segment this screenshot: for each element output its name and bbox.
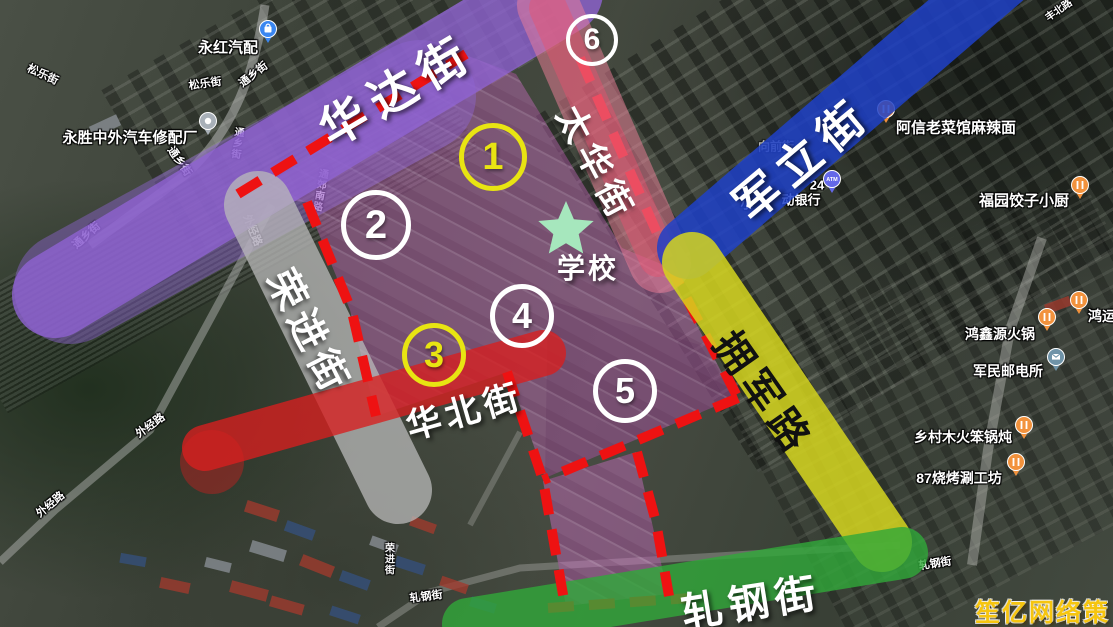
zone-badge-3: 3 <box>402 323 466 387</box>
zone-badge-6: 6 <box>566 14 618 66</box>
zone-number: 6 <box>584 25 601 55</box>
zone-number: 3 <box>424 337 444 373</box>
zone-badge-5: 5 <box>593 359 657 423</box>
zone-badge-1: 1 <box>459 123 527 191</box>
zone-number: 2 <box>365 205 387 245</box>
watermark: 笙亿网络策划 <box>975 593 1113 627</box>
zone-badge-2: 2 <box>341 190 411 260</box>
zone-number: 5 <box>615 373 635 409</box>
zone-number: 1 <box>482 138 503 176</box>
zone-number: 4 <box>512 298 532 334</box>
school-label: 学校 <box>557 247 619 287</box>
annotation-layer <box>0 0 1113 627</box>
map-canvas[interactable]: 松乐街 松乐街 通乡街 通乡街 通乡街 通乡街 外经路 外经路 外经路 通郊南路… <box>0 0 1113 627</box>
zone-badge-4: 4 <box>490 284 554 348</box>
